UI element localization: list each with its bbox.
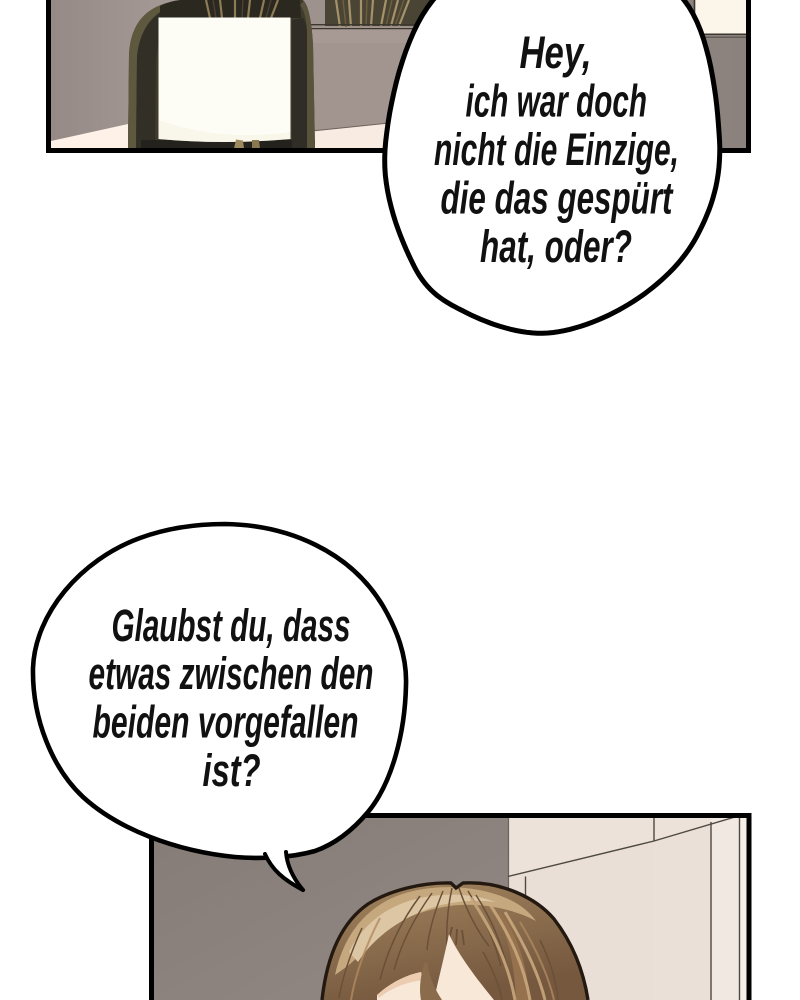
svg-text:hat, oder?: hat, oder? [480, 221, 632, 272]
svg-text:beiden vorgefallen: beiden vorgefallen [93, 697, 359, 748]
svg-text:ist?: ist? [203, 745, 261, 796]
svg-text:die das gespürt: die das gespürt [441, 173, 674, 224]
svg-text:Hey,: Hey, [520, 27, 592, 78]
svg-text:nicht die Einzige,: nicht die Einzige, [434, 124, 679, 175]
svg-text:etwas zwischen den: etwas zwischen den [89, 648, 374, 699]
svg-text:ich war doch: ich war doch [466, 76, 648, 127]
svg-text:Glaubst du, dass: Glaubst du, dass [112, 600, 351, 651]
